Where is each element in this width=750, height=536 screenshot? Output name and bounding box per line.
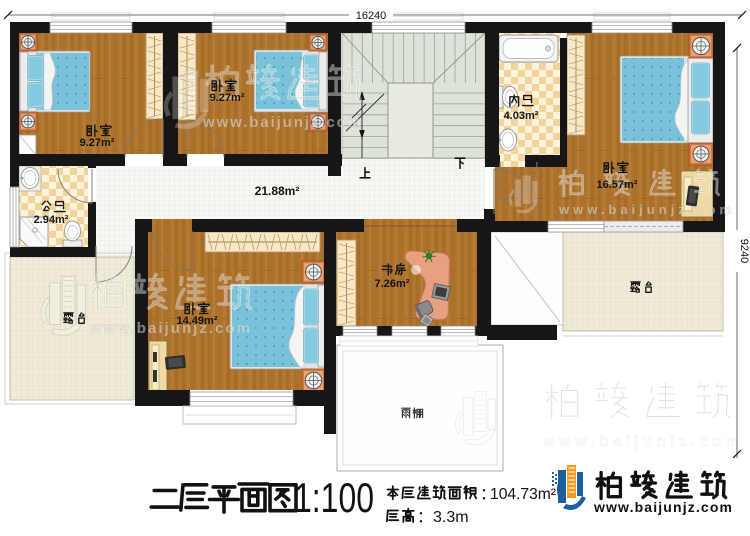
- svg-text:1:100: 1:100: [294, 474, 374, 521]
- svg-text:9.27m²: 9.27m²: [80, 137, 115, 149]
- svg-text:14.49m²: 14.49m²: [177, 315, 218, 327]
- svg-text:2.94m²: 2.94m²: [34, 214, 69, 226]
- svg-text:9240: 9240: [738, 239, 750, 263]
- svg-text:104.73m²: 104.73m²: [490, 486, 556, 503]
- svg-text:16240: 16240: [356, 10, 387, 22]
- svg-text:7.26m²: 7.26m²: [375, 278, 410, 290]
- svg-text:：3.3m: ：3.3m: [417, 509, 469, 526]
- svg-text:16.57m²: 16.57m²: [597, 179, 638, 191]
- svg-text:9.27m²: 9.27m²: [210, 92, 245, 104]
- svg-text:www.baijunjz.com: www.baijunjz.com: [593, 499, 732, 515]
- svg-text:21.88m²: 21.88m²: [255, 184, 300, 198]
- svg-text:4.03m²: 4.03m²: [504, 110, 539, 122]
